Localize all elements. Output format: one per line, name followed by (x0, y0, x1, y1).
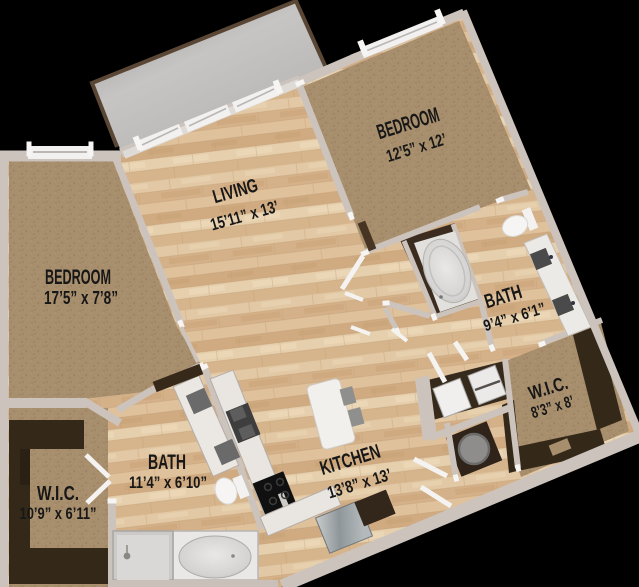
svg-text:BATH: BATH (148, 451, 186, 474)
svg-text:11’4” x 6’10”: 11’4” x 6’10” (129, 473, 207, 492)
svg-text:17’5” x 7’8”: 17’5” x 7’8” (44, 288, 118, 308)
svg-text:BEDROOM: BEDROOM (45, 266, 111, 289)
svg-text:10’9” x 6’11”: 10’9” x 6’11” (20, 504, 97, 523)
svg-text:W.I.C.: W.I.C. (37, 483, 79, 505)
